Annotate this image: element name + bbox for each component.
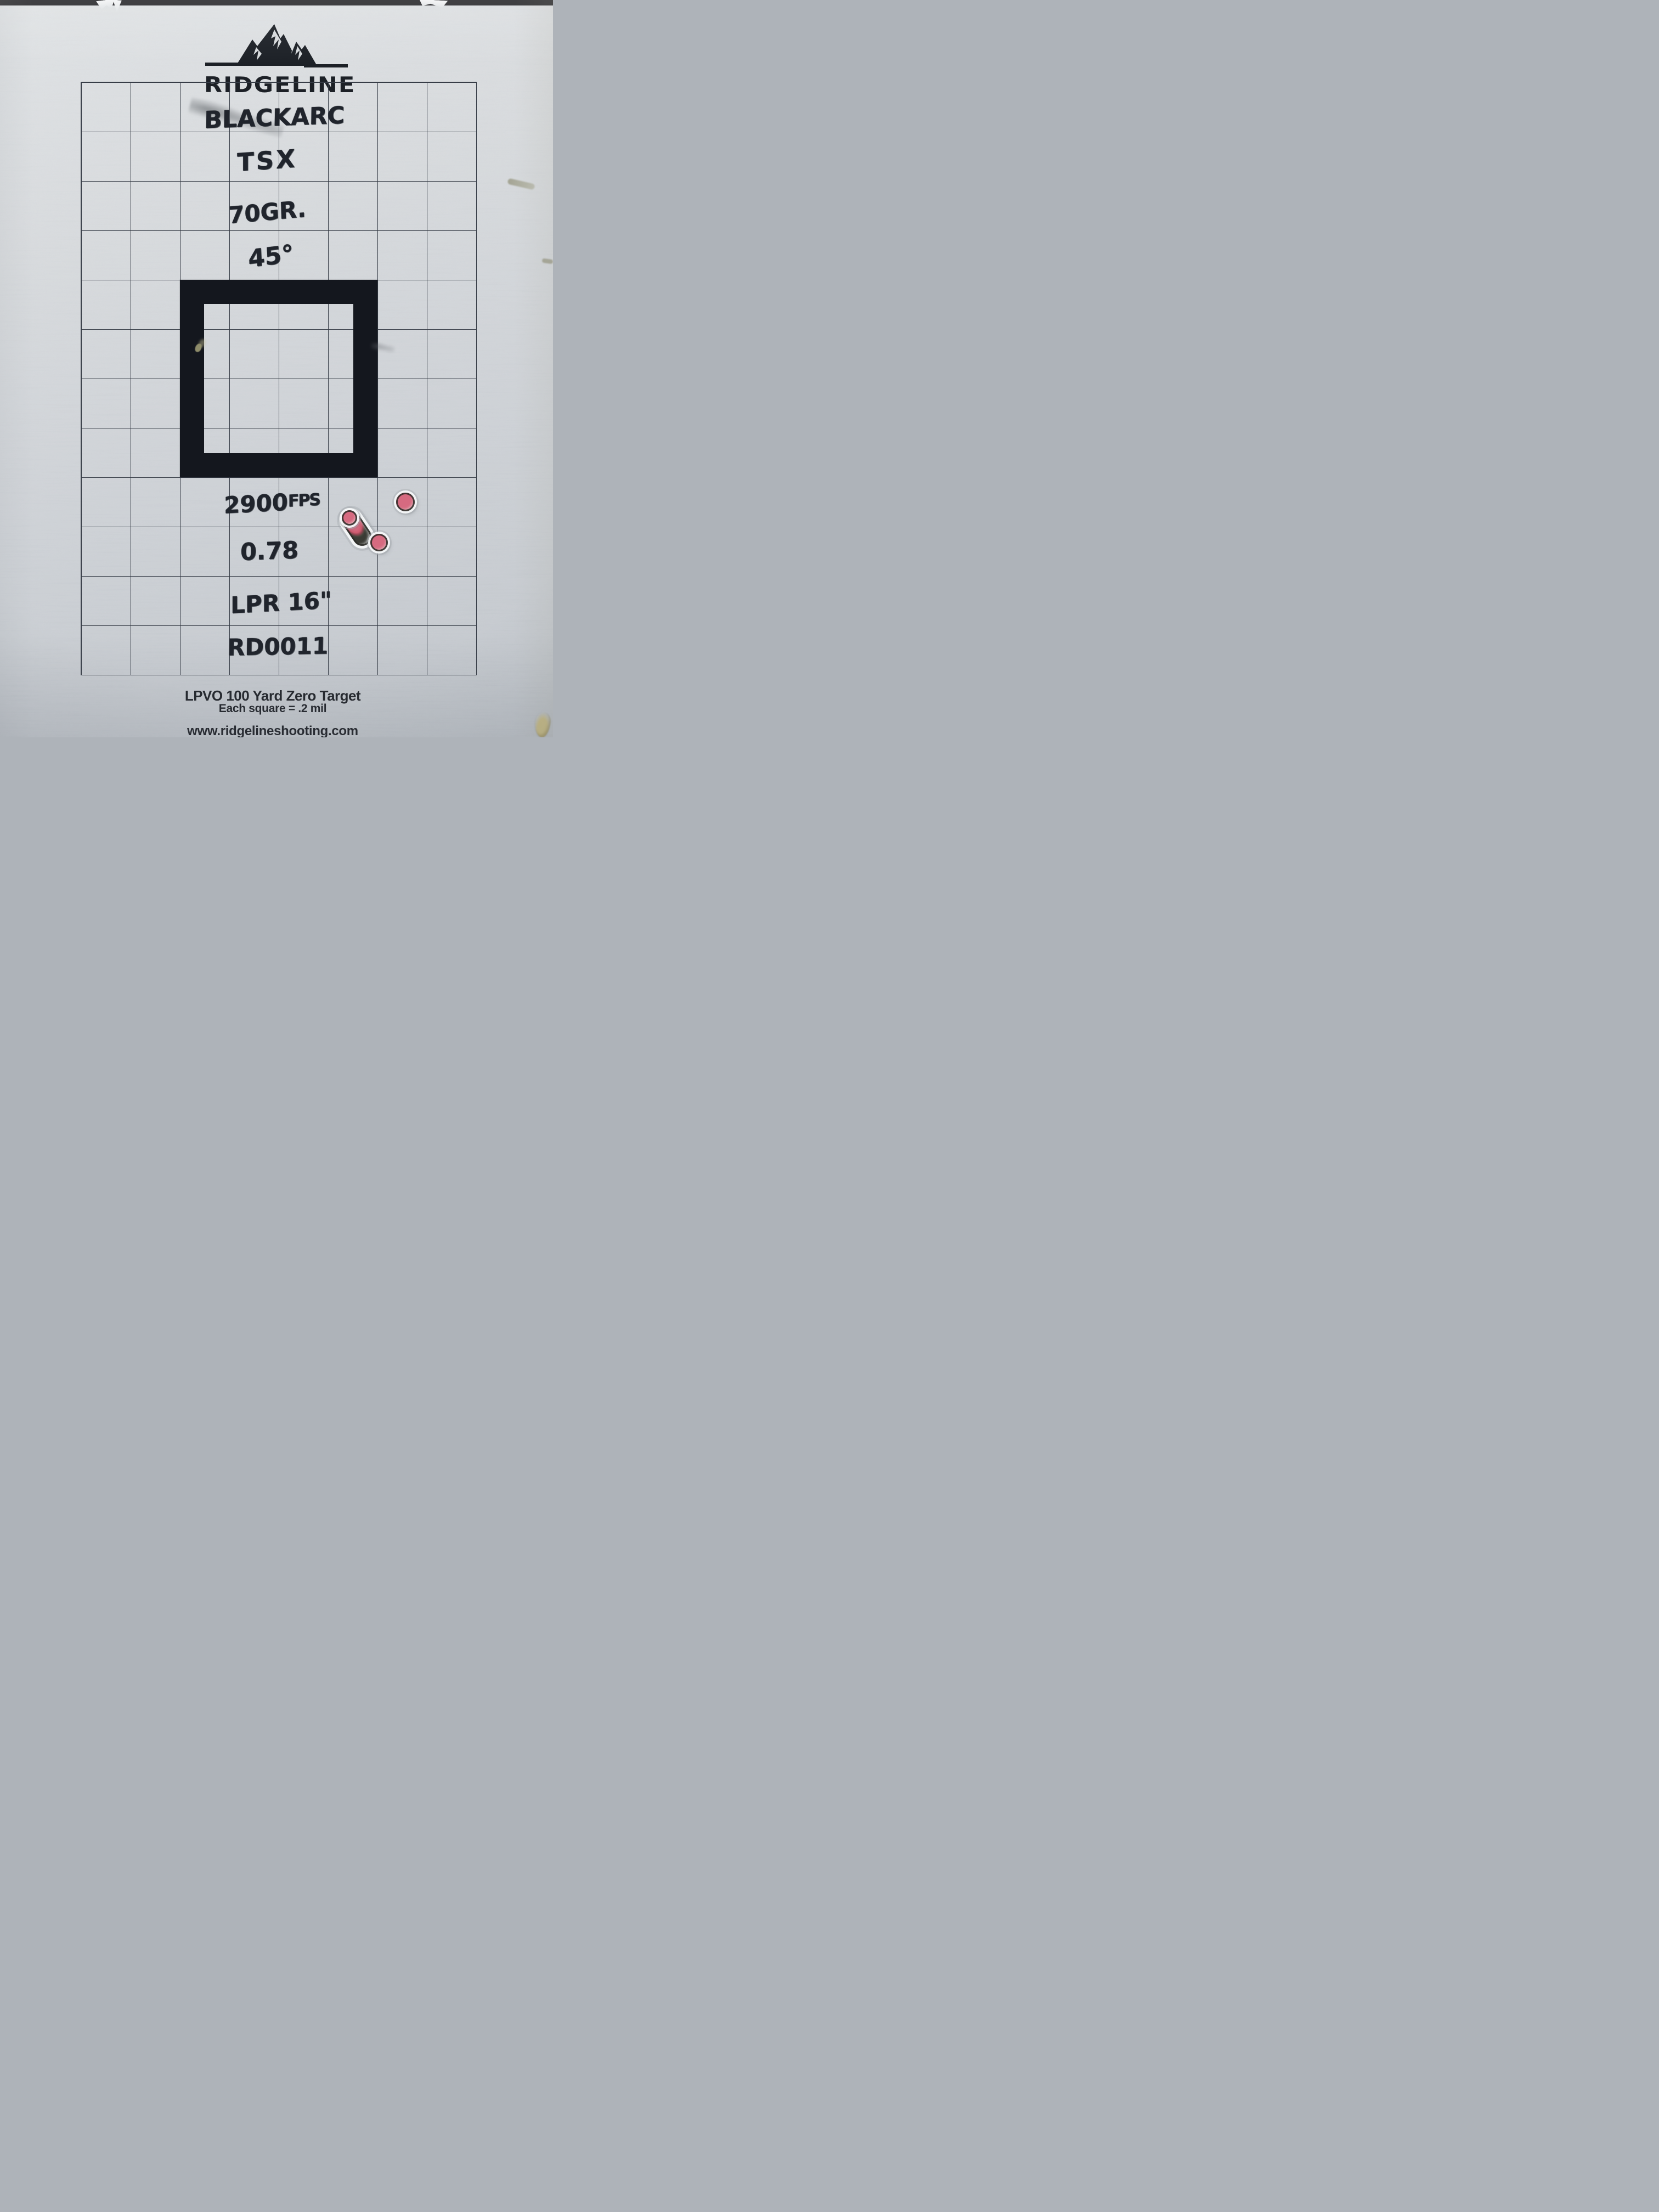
handwritten-rifle-label: LPR 16"	[230, 586, 332, 619]
target-photo: RIDGELINE BLACKARC TSX 70GR. 45° 2900FPS…	[0, 0, 553, 737]
handwritten-velocity-label: 2900FPS	[224, 487, 320, 518]
bullet-hole	[396, 493, 415, 511]
mountain-icon	[204, 22, 349, 74]
square-legend: Each square = .2 mil	[0, 702, 549, 715]
torn-tape	[419, 0, 448, 8]
handwritten-bullet-label: TSX	[237, 144, 297, 177]
handwritten-angle-label: 45°	[247, 240, 294, 273]
wax-streak	[507, 178, 535, 190]
table-edge	[0, 0, 553, 5]
velocity-unit: FPS	[288, 490, 320, 511]
bullet-hole	[342, 510, 357, 526]
handwritten-group-size: 0.78	[240, 537, 298, 566]
website-url: www.ridgelineshooting.com	[0, 724, 549, 737]
wax-streak	[542, 258, 553, 264]
bullet-hole	[370, 534, 388, 551]
aiming-square	[180, 280, 377, 477]
handwritten-ammo-label: BLACKARC	[204, 101, 345, 134]
velocity-value: 2900	[224, 488, 288, 518]
handwritten-round-id: RD0011	[227, 632, 329, 661]
